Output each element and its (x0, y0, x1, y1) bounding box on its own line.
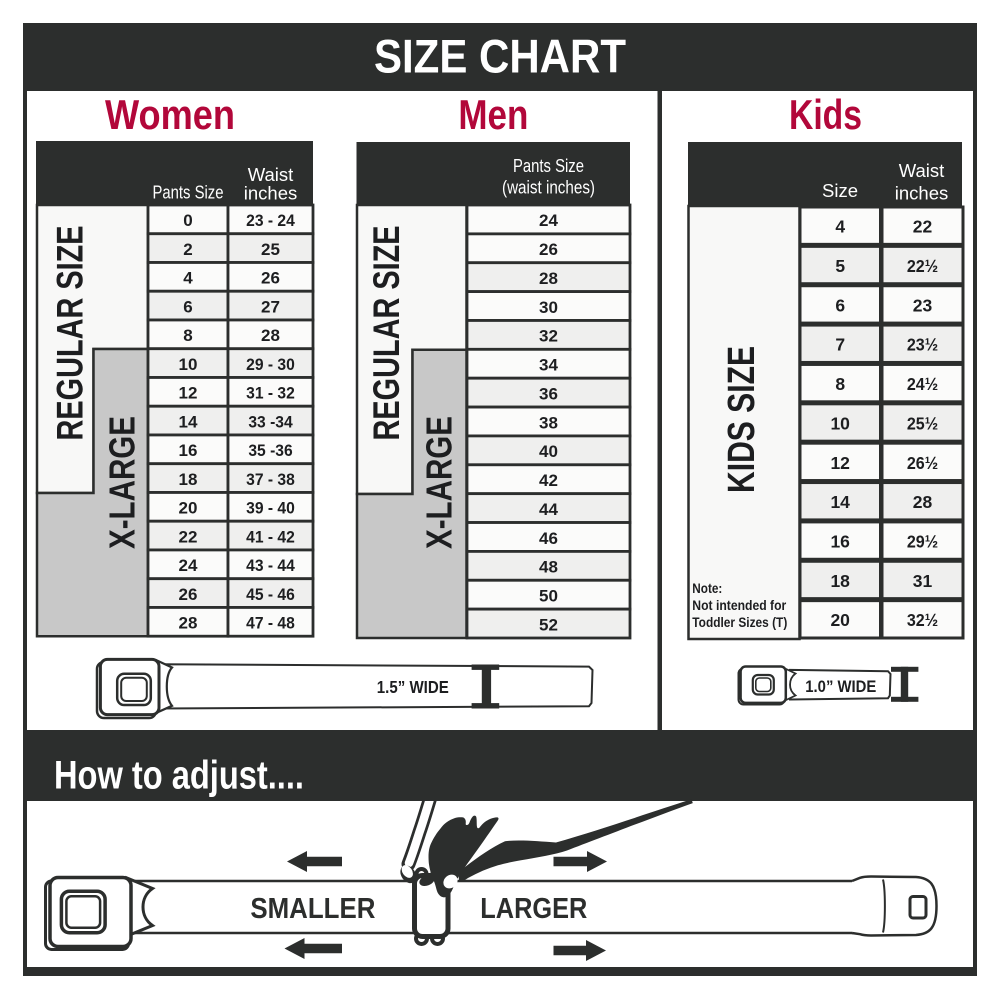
svg-text:REGULAR SIZE: REGULAR SIZE (366, 226, 407, 441)
svg-text:Toddler Sizes (T): Toddler Sizes (T) (692, 614, 787, 630)
svg-text:Note:: Note: (692, 580, 722, 596)
svg-text:31: 31 (913, 571, 933, 591)
svg-text:Waist: Waist (899, 160, 945, 181)
svg-text:0: 0 (183, 211, 192, 230)
svg-text:36: 36 (539, 384, 558, 403)
svg-text:SMALLER: SMALLER (250, 892, 375, 924)
svg-text:8: 8 (835, 374, 845, 394)
svg-text:29½: 29½ (907, 532, 938, 552)
svg-text:KIDS SIZE: KIDS SIZE (721, 346, 763, 493)
svg-text:28: 28 (913, 492, 933, 512)
svg-text:41 - 42: 41 - 42 (246, 527, 295, 546)
svg-text:LARGER: LARGER (480, 892, 587, 924)
svg-text:23½: 23½ (907, 335, 938, 355)
svg-text:Pants Size: Pants Size (153, 182, 224, 203)
svg-text:46: 46 (539, 529, 558, 548)
svg-text:32: 32 (539, 327, 558, 346)
svg-text:24½: 24½ (907, 374, 938, 394)
svg-text:24: 24 (179, 556, 198, 575)
svg-text:4: 4 (183, 269, 193, 288)
svg-text:1.0” WIDE: 1.0” WIDE (805, 677, 876, 696)
svg-text:X-LARGE: X-LARGE (102, 416, 143, 549)
svg-text:1.5” WIDE: 1.5” WIDE (377, 677, 449, 697)
svg-text:16: 16 (179, 441, 198, 460)
svg-text:24: 24 (539, 211, 558, 230)
svg-text:10: 10 (179, 355, 198, 374)
svg-text:45 - 46: 45 - 46 (246, 585, 295, 604)
svg-text:47 - 48: 47 - 48 (246, 614, 295, 633)
svg-text:25: 25 (261, 240, 280, 259)
svg-text:31 - 32: 31 - 32 (246, 384, 295, 403)
svg-text:27: 27 (261, 297, 280, 316)
svg-text:25½: 25½ (907, 413, 938, 433)
svg-text:33 -34: 33 -34 (248, 412, 293, 431)
svg-text:18: 18 (179, 470, 198, 489)
svg-text:40: 40 (539, 442, 558, 461)
svg-text:26: 26 (539, 240, 558, 259)
svg-text:23 - 24: 23 - 24 (246, 211, 295, 230)
svg-text:5: 5 (835, 256, 845, 276)
svg-text:22: 22 (179, 527, 198, 546)
svg-text:6: 6 (183, 297, 192, 316)
svg-text:22½: 22½ (907, 256, 938, 276)
svg-text:38: 38 (539, 413, 558, 432)
svg-text:How to adjust....: How to adjust.... (54, 754, 304, 798)
svg-text:REGULAR SIZE: REGULAR SIZE (50, 226, 91, 441)
svg-text:Kids: Kids (789, 91, 862, 138)
svg-text:29 - 30: 29 - 30 (246, 355, 295, 374)
svg-text:28: 28 (539, 269, 558, 288)
svg-text:16: 16 (830, 532, 850, 552)
svg-text:52: 52 (539, 615, 558, 634)
svg-text:42: 42 (539, 471, 558, 490)
svg-text:2: 2 (183, 240, 192, 259)
svg-text:22: 22 (913, 217, 933, 237)
svg-text:12: 12 (179, 384, 198, 403)
svg-text:26: 26 (261, 269, 280, 288)
svg-text:10: 10 (830, 413, 850, 433)
svg-text:23: 23 (913, 295, 933, 315)
svg-text:20: 20 (830, 610, 850, 630)
svg-text:44: 44 (539, 500, 558, 519)
svg-text:14: 14 (830, 492, 850, 512)
svg-text:inches: inches (895, 183, 948, 204)
svg-text:7: 7 (835, 335, 845, 355)
svg-text:48: 48 (539, 558, 558, 577)
svg-text:28: 28 (261, 326, 280, 345)
svg-text:50: 50 (539, 587, 558, 606)
svg-text:Size: Size (822, 180, 858, 201)
svg-text:30: 30 (539, 298, 558, 317)
svg-text:12: 12 (830, 453, 850, 473)
svg-text:X-LARGE: X-LARGE (419, 416, 460, 549)
svg-text:SIZE CHART: SIZE CHART (374, 30, 626, 83)
svg-text:4: 4 (835, 217, 845, 237)
svg-text:26: 26 (179, 585, 198, 604)
svg-text:37 - 38: 37 - 38 (246, 470, 295, 489)
svg-text:35 -36: 35 -36 (248, 441, 292, 460)
svg-text:Pants Size: Pants Size (513, 155, 584, 176)
svg-text:6: 6 (835, 295, 845, 315)
svg-text:39 - 40: 39 - 40 (246, 499, 295, 518)
svg-text:Women: Women (105, 91, 235, 138)
svg-text:43 - 44: 43 - 44 (246, 556, 295, 575)
svg-text:Not intended for: Not intended for (692, 597, 786, 613)
svg-text:28: 28 (179, 614, 198, 633)
svg-text:32½: 32½ (907, 610, 938, 630)
svg-text:26½: 26½ (907, 453, 938, 473)
svg-text:14: 14 (179, 412, 198, 431)
svg-text:20: 20 (179, 499, 198, 518)
svg-text:34: 34 (539, 356, 558, 375)
svg-text:18: 18 (830, 571, 850, 591)
svg-text:(waist inches): (waist inches) (502, 177, 595, 198)
svg-text:inches: inches (244, 183, 297, 204)
svg-text:8: 8 (183, 326, 192, 345)
svg-text:Men: Men (458, 91, 528, 138)
